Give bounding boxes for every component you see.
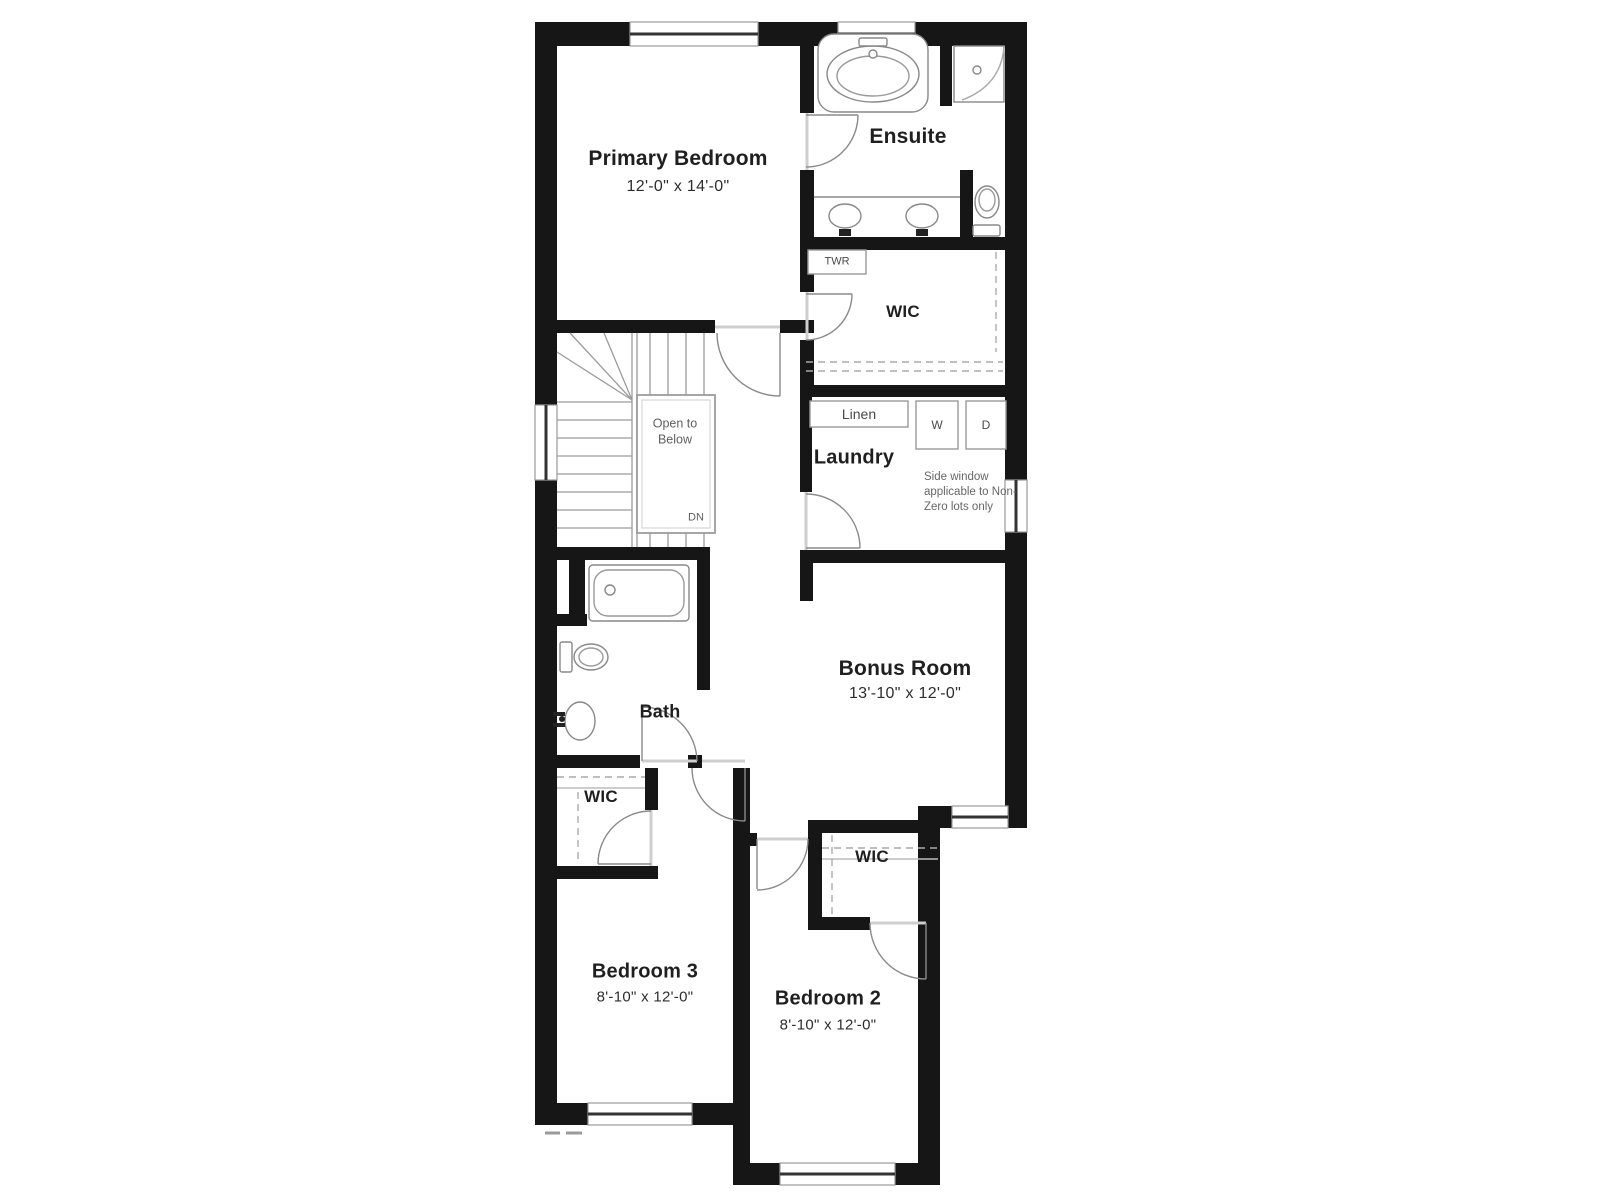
primary-bedroom-label: Primary Bedroom — [588, 147, 767, 171]
ensuite-shower — [940, 46, 1004, 106]
bath-sink — [553, 702, 595, 740]
bath-toilet — [560, 642, 608, 672]
bedroom2-label: Bedroom 2 — [775, 988, 881, 1011]
ensuite-vanity-sinks — [814, 197, 960, 236]
window-top-primary — [630, 22, 758, 46]
ensuite-toilet — [973, 186, 1000, 236]
window-left-stairs — [535, 405, 557, 480]
door-primary-bedroom — [717, 333, 780, 396]
door-bedroom2 — [757, 839, 808, 890]
door-ensuite — [806, 115, 858, 167]
ensuite-tub — [818, 34, 928, 112]
dryer-label: D — [982, 419, 991, 433]
linen-label: Linen — [842, 406, 876, 422]
window-bonus — [952, 806, 1008, 828]
door-wic-bedroom2 — [870, 923, 926, 979]
bonus-room-label: Bonus Room — [839, 657, 972, 681]
bedroom2-dims: 8'-10" x 12'-0" — [780, 1016, 877, 1033]
side-window-note: Side window applicable to Non-Zero lots … — [924, 470, 1018, 516]
stairs-down-label: DN — [688, 512, 704, 525]
window-bedroom2 — [780, 1163, 895, 1185]
wic-bedroom2-label: WIC — [855, 847, 889, 867]
wic-bedroom3-label: WIC — [584, 787, 618, 807]
laundry-label: Laundry — [814, 447, 894, 470]
bath-label: Bath — [640, 702, 681, 723]
door-wic-primary — [806, 294, 852, 340]
open-to-below-label: Open to Below — [639, 416, 711, 447]
window-bedroom3 — [588, 1103, 692, 1125]
bedroom3-label: Bedroom 3 — [592, 961, 698, 984]
bedroom3-dims: 8'-10" x 12'-0" — [597, 988, 694, 1005]
towel-label: TWR — [824, 256, 849, 269]
bath-tub — [589, 565, 689, 621]
washer-label: W — [931, 419, 942, 433]
ensuite-label: Ensuite — [869, 125, 946, 149]
primary-bedroom-dims: 12'-0" x 14'-0" — [627, 178, 730, 196]
floor-plan-page: Primary Bedroom 12'-0" x 14'-0" Ensuite … — [0, 0, 1600, 1200]
door-laundry — [806, 494, 860, 548]
door-wic-bedroom3 — [598, 811, 651, 864]
wic-primary-label: WIC — [886, 302, 920, 322]
bonus-room-dims: 13'-10" x 12'-0" — [849, 685, 961, 703]
